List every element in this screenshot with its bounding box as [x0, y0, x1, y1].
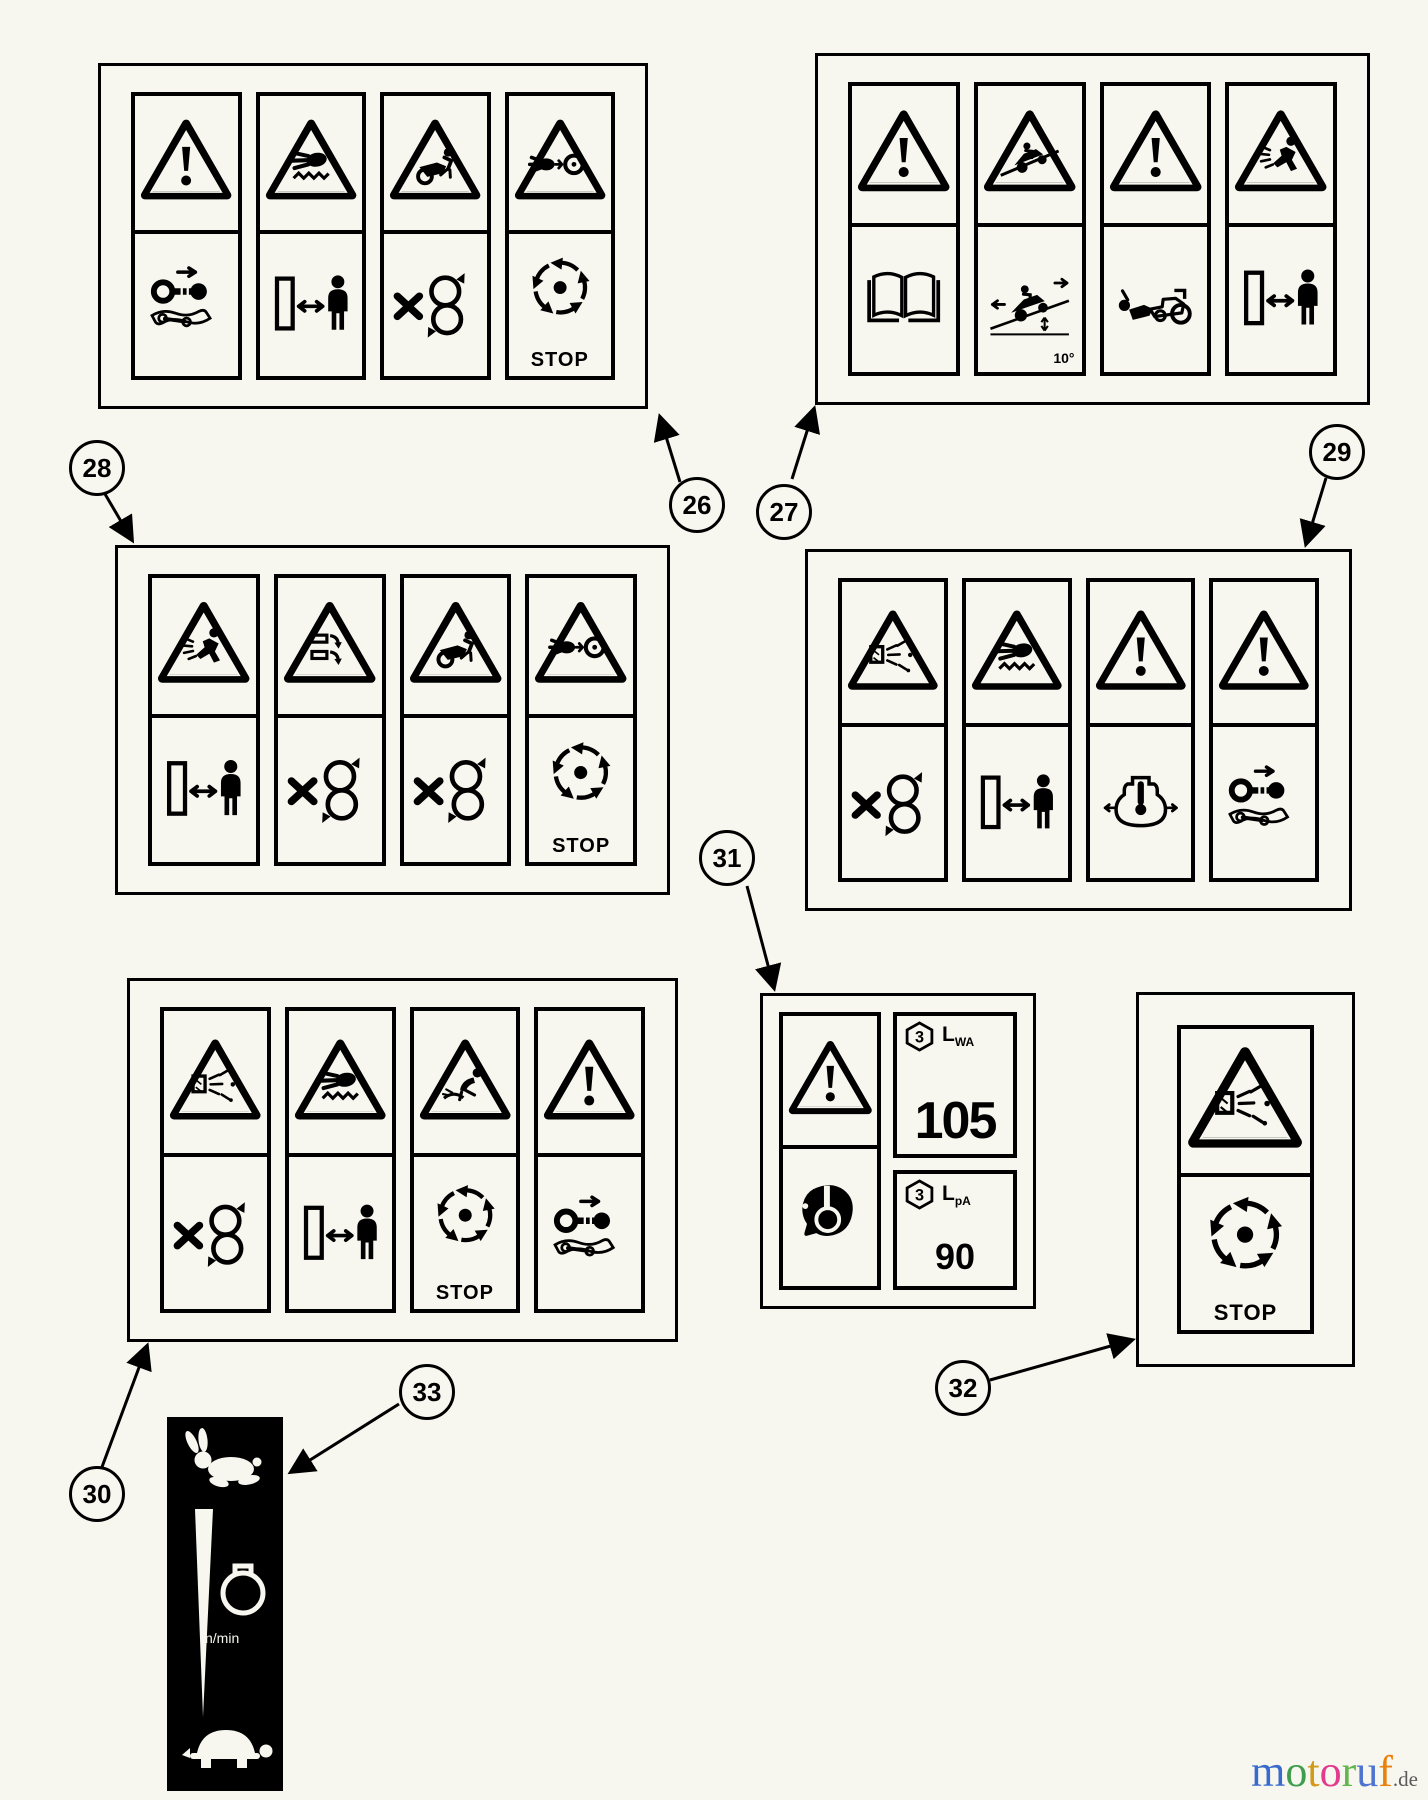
decal-column: STOP — [505, 92, 616, 380]
rpm-label: n/min — [205, 1630, 239, 1646]
radiator-pressure-icon — [1090, 727, 1192, 878]
child-nearby-warning-icon — [414, 1011, 517, 1157]
decal-column — [380, 92, 491, 380]
keep-distance-icon — [1229, 227, 1333, 372]
no-blades-icon — [384, 234, 487, 376]
machine-tip-warning-icon — [404, 578, 508, 718]
cutter-bars-warning-icon — [278, 578, 382, 718]
slope-tip-warning-icon — [978, 86, 1082, 227]
decal-column — [274, 574, 386, 866]
callout-number: 29 — [1323, 437, 1352, 468]
decal-column — [1086, 578, 1196, 882]
decal-column: 10° — [974, 82, 1086, 376]
decal-column — [1209, 578, 1319, 882]
exclamation-warning-icon — [1213, 582, 1315, 727]
lwa-noise-level-box: 3 LWA 105 — [893, 1012, 1017, 1158]
key-manual-icon — [1213, 727, 1315, 878]
exclamation-warning-icon — [1104, 86, 1208, 227]
hand-cut-warning-icon — [966, 582, 1068, 727]
callout-28: 28 — [69, 440, 125, 496]
callout-number: 28 — [83, 453, 112, 484]
decal-text: STOP — [529, 835, 633, 858]
callout-arrow-30 — [102, 1346, 147, 1467]
warning-decal-28: STOP — [115, 545, 670, 895]
callout-arrow-29 — [1306, 478, 1326, 544]
logo-letter: m — [1251, 1747, 1285, 1796]
warning-decal-29 — [805, 549, 1352, 911]
logo-letter: o — [1285, 1747, 1307, 1796]
decal-column: STOP — [1177, 1025, 1314, 1334]
logo-letter: o — [1320, 1747, 1342, 1796]
decal-text: 10° — [1053, 350, 1074, 366]
lpa-noise-level-box: 3 LpA 90 — [893, 1170, 1017, 1290]
callout-number: 27 — [770, 497, 799, 528]
decal-column — [131, 92, 242, 380]
noise-level-decal-31: 3 LWA 105 3 LpA 90 — [760, 993, 1036, 1309]
hand-caught-warning-icon — [509, 96, 612, 234]
warning-decal-30: STOP — [127, 978, 678, 1342]
callout-30: 30 — [69, 1466, 125, 1522]
warning-decal-27: 10° — [815, 53, 1370, 405]
decal-column — [848, 82, 960, 376]
decal-column — [160, 1007, 271, 1313]
callout-arrow-32 — [990, 1340, 1132, 1380]
stop-dial-icon: STOP — [1181, 1177, 1310, 1330]
logo-letter: r — [1342, 1747, 1357, 1796]
stop-dial-icon: STOP — [414, 1157, 517, 1309]
key-manual-icon — [538, 1157, 641, 1309]
callout-number: 32 — [949, 1373, 978, 1404]
decal-column — [534, 1007, 645, 1313]
logo-letter: u — [1356, 1747, 1378, 1796]
key-manual-icon — [135, 234, 238, 376]
no-blades-icon — [278, 718, 382, 862]
callout-arrow-26 — [660, 417, 680, 482]
callout-arrow-27 — [792, 409, 814, 479]
callout-26: 26 — [669, 477, 725, 533]
exclamation-warning-icon — [852, 86, 956, 227]
stop-dial-icon: STOP — [509, 234, 612, 376]
svg-text:3: 3 — [915, 1028, 924, 1046]
hand-caught-warning-icon — [529, 578, 633, 718]
stop-dial-icon: STOP — [529, 718, 633, 862]
debris-eject-warning-icon — [842, 582, 944, 727]
decal-column: STOP — [410, 1007, 521, 1313]
slope-limit-icon: 10° — [978, 227, 1082, 372]
noise-values-column: 3 LWA 105 3 LpA 90 — [893, 1012, 1017, 1290]
throttle-speed-decal-33: n/min — [167, 1417, 283, 1791]
callout-arrow-33 — [291, 1404, 399, 1472]
decal-column — [838, 578, 948, 882]
lpa-symbol: LpA — [942, 1183, 971, 1207]
callout-33: 33 — [399, 1364, 455, 1420]
callout-32: 32 — [935, 1360, 991, 1416]
decal-column — [1225, 82, 1337, 376]
decal-text: STOP — [1181, 1300, 1310, 1326]
warning-decal-32: STOP — [1136, 992, 1355, 1367]
hexagon-3-icon: 3 — [904, 1179, 935, 1210]
decal-column — [1100, 82, 1212, 376]
callout-arrow-31 — [747, 886, 774, 988]
decal-column — [962, 578, 1072, 882]
exclamation-warning-icon — [1090, 582, 1192, 727]
thrown-objects-warning-icon — [1229, 86, 1333, 227]
logo-letter: f — [1378, 1747, 1393, 1796]
hand-cut-warning-icon — [289, 1011, 392, 1157]
exclamation-warning-icon — [135, 96, 238, 234]
lwa-symbol: LWA — [942, 1024, 974, 1048]
logo-letter: t — [1307, 1747, 1319, 1796]
callout-31: 31 — [699, 830, 755, 886]
ear-protection-helmet-icon — [783, 1149, 877, 1286]
callout-number: 30 — [83, 1479, 112, 1510]
callout-number: 26 — [683, 490, 712, 521]
warning-decal-26: STOP — [98, 63, 648, 409]
keep-distance-icon — [152, 718, 256, 862]
exclamation-warning-icon — [538, 1011, 641, 1157]
logo-suffix: .de — [1393, 1767, 1418, 1791]
callout-27: 27 — [756, 484, 812, 540]
callout-arrow-28 — [105, 494, 132, 540]
keep-distance-icon — [260, 234, 363, 376]
keep-distance-icon — [966, 727, 1068, 878]
decal-column — [148, 574, 260, 866]
callout-29: 29 — [1309, 424, 1365, 480]
hexagon-3-icon: 3 — [904, 1021, 935, 1052]
lpa-value: 90 — [904, 1239, 1006, 1275]
lwa-value: 105 — [904, 1095, 1006, 1147]
thrown-objects-warning-icon — [152, 578, 256, 718]
callout-number: 33 — [413, 1377, 442, 1408]
decal-text: STOP — [509, 349, 612, 372]
reverse-runover-icon — [1104, 227, 1208, 372]
no-blades-icon — [404, 718, 508, 862]
decal-text: STOP — [414, 1282, 517, 1305]
callout-number: 31 — [713, 843, 742, 874]
decal-column: STOP — [525, 574, 637, 866]
no-blades-icon — [164, 1157, 267, 1309]
motoruf-logo[interactable]: motoruf.de — [1251, 1750, 1418, 1794]
debris-eject-warning-icon — [1181, 1029, 1310, 1177]
decal-column — [256, 92, 367, 380]
debris-eject-warning-icon — [164, 1011, 267, 1157]
svg-text:3: 3 — [915, 1187, 924, 1205]
no-blades-icon — [842, 727, 944, 878]
keep-distance-icon — [289, 1157, 392, 1309]
decal-diagram-sheet: 26 27 28 29 30 31 32 33 STOP 10° STOP ST… — [0, 0, 1428, 1800]
decal-column — [400, 574, 512, 866]
read-manual-icon — [852, 227, 956, 372]
machine-tip-warning-icon — [384, 96, 487, 234]
decal-column — [285, 1007, 396, 1313]
exclamation-warning-icon — [783, 1016, 877, 1149]
hand-cut-warning-icon — [260, 96, 363, 234]
decal-column — [779, 1012, 881, 1290]
